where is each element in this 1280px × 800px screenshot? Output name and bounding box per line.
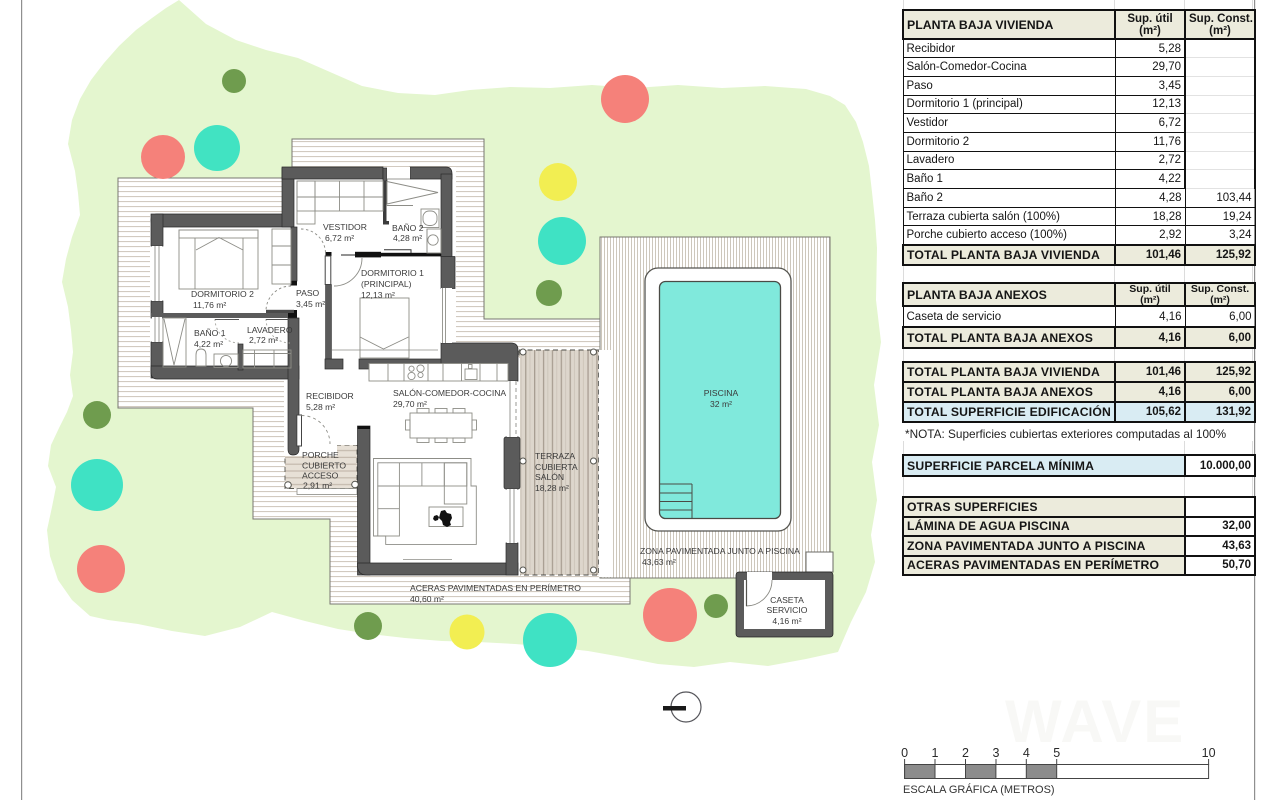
svg-text:4,28 m²: 4,28 m² <box>393 233 422 243</box>
svg-text:CASETA: CASETA <box>770 595 804 605</box>
svg-text:6,72 m²: 6,72 m² <box>325 233 354 243</box>
svg-text:VESTIDOR: VESTIDOR <box>323 222 367 232</box>
svg-text:3,45 m²: 3,45 m² <box>296 299 325 309</box>
svg-text:5,28 m²: 5,28 m² <box>306 402 335 412</box>
svg-text:43,63 m²: 43,63 m² <box>642 557 676 567</box>
svg-text:ACERAS PAVIMENTADAS EN PERÍMET: ACERAS PAVIMENTADAS EN PERÍMETRO <box>410 583 581 593</box>
svg-text:PISCINA: PISCINA <box>704 388 739 398</box>
svg-text:2: 2 <box>962 746 969 760</box>
svg-text:ACCESO: ACCESO <box>302 471 339 481</box>
svg-text:ESCALA GRÁFICA (METROS): ESCALA GRÁFICA (METROS) <box>903 783 1055 796</box>
svg-text:4: 4 <box>1023 746 1030 760</box>
svg-text:SERVICIO: SERVICIO <box>767 605 808 615</box>
svg-text:4,16 m²: 4,16 m² <box>772 616 801 626</box>
svg-text:WAVE: WAVE <box>1005 688 1185 755</box>
svg-text:RECIBIDOR: RECIBIDOR <box>306 391 354 401</box>
svg-text:4,22 m²: 4,22 m² <box>194 339 223 349</box>
svg-text:10: 10 <box>1202 746 1216 760</box>
svg-text:29,70 m²: 29,70 m² <box>393 399 427 409</box>
svg-text:BAÑO 1: BAÑO 1 <box>194 328 226 338</box>
svg-text:CUBIERTA: CUBIERTA <box>535 462 578 472</box>
svg-text:0: 0 <box>901 746 908 760</box>
svg-text:3: 3 <box>993 746 1000 760</box>
svg-text:ZONA PAVIMENTADA JUNTO A PISCI: ZONA PAVIMENTADA JUNTO A PISCINA <box>640 546 800 556</box>
svg-text:18,28 m²: 18,28 m² <box>535 483 569 493</box>
svg-text:32 m²: 32 m² <box>710 399 732 409</box>
svg-text:SALÓN-COMEDOR-COCINA: SALÓN-COMEDOR-COCINA <box>393 388 506 398</box>
svg-text:LAVADERO: LAVADERO <box>247 325 293 335</box>
svg-text:2,91 m²: 2,91 m² <box>303 481 332 491</box>
svg-text:CUBIERTO: CUBIERTO <box>302 460 346 470</box>
svg-text:5: 5 <box>1053 746 1060 760</box>
svg-text:SALÓN: SALÓN <box>535 472 564 482</box>
svg-text:11,76 m²: 11,76 m² <box>193 300 226 310</box>
svg-text:40,60 m²: 40,60 m² <box>410 594 444 604</box>
svg-text:DORMITORIO 1: DORMITORIO 1 <box>361 268 424 278</box>
svg-text:(PRINCIPAL): (PRINCIPAL) <box>361 279 412 289</box>
svg-text:TERRAZA: TERRAZA <box>535 451 575 461</box>
svg-text:PORCHE: PORCHE <box>302 450 339 460</box>
svg-text:PASO: PASO <box>296 288 320 298</box>
svg-text:BAÑO 2: BAÑO 2 <box>392 223 424 233</box>
svg-text:DORMITORIO 2: DORMITORIO 2 <box>191 289 254 299</box>
svg-text:1: 1 <box>932 746 939 760</box>
svg-text:2,72 m²: 2,72 m² <box>249 335 278 345</box>
svg-text:12,13 m²: 12,13 m² <box>361 290 395 300</box>
